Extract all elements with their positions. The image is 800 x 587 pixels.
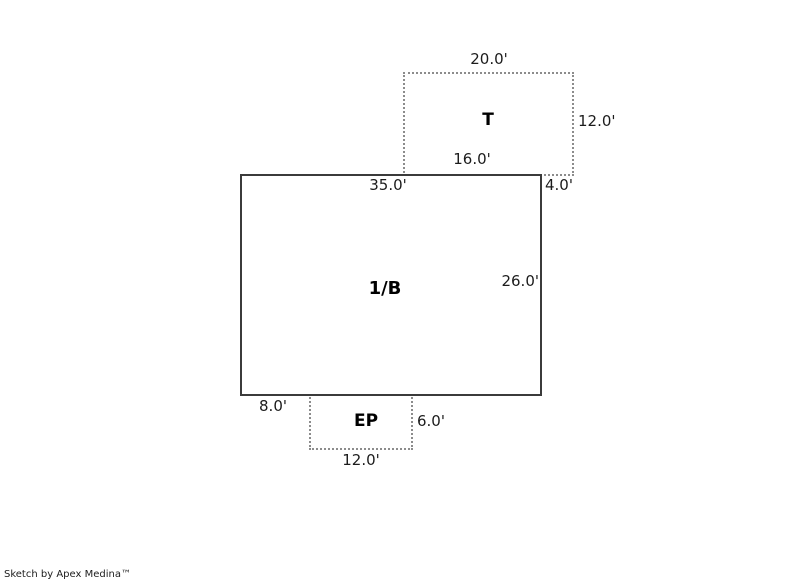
dim-label-t-right: 12.0' — [578, 113, 616, 130]
dim-label-t-top: 20.0' — [470, 51, 508, 68]
area-label-main: 1/B — [369, 278, 402, 299]
sketch-credit-text: Sketch by Apex Medina™ — [4, 569, 131, 580]
dim-label-main-right: 26.0' — [501, 273, 539, 290]
dim-label-ep-right: 6.0' — [417, 413, 445, 430]
dim-label-ep-bottom: 12.0' — [342, 452, 380, 469]
dim-label-t-bottom: 16.0' — [453, 151, 491, 168]
area-label-t: T — [482, 110, 494, 130]
dim-label-main-top: 35.0' — [369, 177, 407, 194]
dim-label-main-bottom-offset: 8.0' — [259, 398, 287, 415]
sketch-canvas: 20.0' T 12.0' 16.0' 4.0' 35.0' 1/B 26.0'… — [0, 0, 800, 587]
area-label-ep: EP — [354, 411, 378, 431]
dim-label-t-overhang: 4.0' — [545, 177, 573, 194]
